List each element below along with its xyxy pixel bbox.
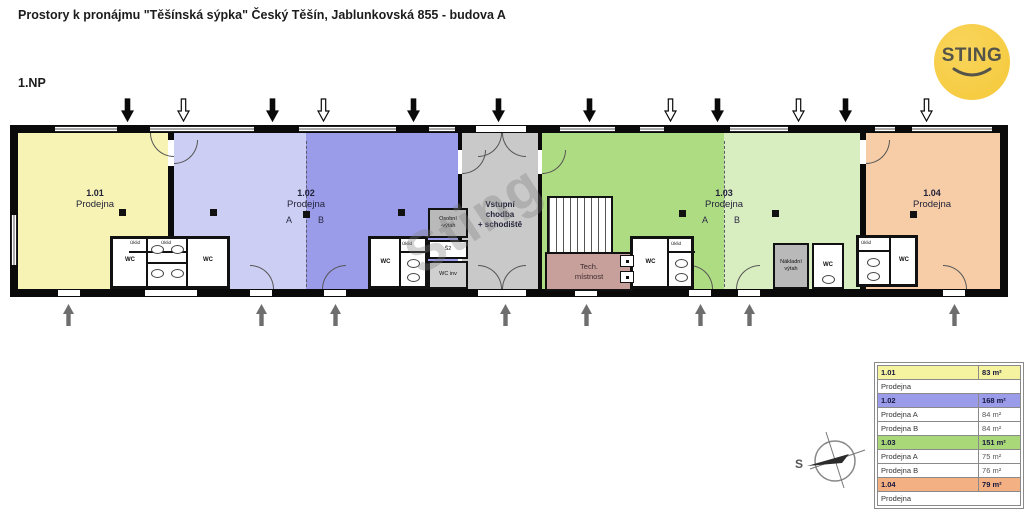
entrance-arrow-up (499, 304, 512, 331)
label-103-a: A (702, 215, 708, 225)
compass-north-arrow (807, 454, 849, 466)
entrance-arrow-down-outline (177, 98, 190, 127)
uklid-label: Úklid (130, 240, 140, 245)
entrance-arrow-down-outline (792, 98, 805, 127)
compass: S (790, 428, 866, 495)
label-103: 1.03 Prodejna (684, 188, 764, 211)
legend-row: Prodejna (878, 380, 1021, 394)
window (429, 126, 455, 132)
entrance-arrow-down-filled (492, 98, 505, 127)
label-102: 1.02 Prodejna (266, 188, 346, 211)
wc-block: WC Úklid (368, 236, 428, 289)
legend-room-area: 84 m² (979, 408, 1021, 422)
toilet-icon (867, 272, 880, 281)
toilet-icon (407, 273, 420, 282)
toilet-icon (151, 245, 164, 254)
column-marker (398, 209, 405, 216)
legend-room-name: Prodejna (878, 492, 1021, 506)
entrance-arrow-up (329, 304, 342, 331)
legend-room-name: 1.02 (878, 394, 979, 408)
column-marker (910, 211, 917, 218)
entrance-arrow-down-outline (317, 98, 330, 127)
window (875, 126, 895, 132)
window (55, 126, 117, 132)
door-opening (324, 290, 346, 296)
legend-room-name: 1.04 (878, 478, 979, 492)
window-left (11, 215, 17, 265)
entrance-arrow-down-filled (407, 98, 420, 127)
wc-label: WC (814, 262, 842, 268)
toilet-icon (171, 245, 184, 254)
uklid-label: Úklid (671, 241, 681, 246)
entrance-arrow-up (580, 304, 593, 331)
legend-room-area: 84 m² (979, 422, 1021, 436)
entrance-arrow-down-outline (920, 98, 933, 127)
legend-row: Prodejna A75 m² (878, 450, 1021, 464)
entrance-arrow-down-outline (664, 98, 677, 127)
door-opening (478, 290, 526, 296)
legend-row: 1.03151 m² (878, 436, 1021, 450)
wall-right (1000, 125, 1008, 297)
entrance-arrow-down-filled (839, 98, 852, 127)
uklid-label: Úklid (402, 241, 412, 246)
room-s2: Š2 (428, 240, 468, 259)
window (640, 126, 664, 132)
wc-label: WC (372, 259, 399, 265)
door-opening (738, 290, 760, 296)
electrical-panel-icon (620, 271, 634, 283)
legend-room-name: Prodejna A (878, 450, 979, 464)
uklid-label: Úklid (161, 240, 171, 245)
uklid-label: Úklid (861, 240, 871, 245)
page-title: Prostory k pronájmu "Těšínská sýpka" Čes… (18, 8, 506, 22)
toilet-icon (407, 259, 420, 268)
legend-room-area: 75 m² (979, 450, 1021, 464)
legend-row: 1.0479 m² (878, 478, 1021, 492)
entrance-arrow-down-filled (121, 98, 134, 127)
wc-label: WC (634, 259, 667, 265)
tech-room-label: Tech. (580, 262, 598, 271)
toilet-icon (675, 273, 688, 282)
label-101: 1.01 Prodejna (55, 188, 135, 211)
label-corridor: Vstupní chodba + schodiště (464, 200, 536, 230)
legend-row: Prodejna B76 m² (878, 464, 1021, 478)
label-102-b: B (318, 215, 324, 225)
staircase (547, 196, 613, 254)
label-104: 1.04 Prodejna (892, 188, 972, 211)
legend-room-name: 1.03 (878, 436, 979, 450)
wc-label: WC (115, 257, 145, 263)
room-wc-inv: WC inv (428, 261, 468, 289)
legend-room-area: 151 m² (979, 436, 1021, 450)
passenger-lift: Osobní -výtah (428, 208, 468, 238)
wc-label: WC (890, 257, 918, 263)
sting-logo: STING (934, 24, 1010, 100)
legend-row: 1.0183 m² (878, 366, 1021, 380)
wc-room: WC (812, 243, 844, 289)
legend-room-area: 168 m² (979, 394, 1021, 408)
wall-left (10, 125, 18, 297)
entrance-arrow-up (743, 304, 756, 331)
legend-room-name: Prodejna B (878, 422, 979, 436)
legend-row: Prodejna B84 m² (878, 422, 1021, 436)
door-opening (58, 290, 80, 296)
window (730, 126, 788, 132)
wc-block: Úklid WC (856, 235, 918, 287)
legend-room-area: 79 m² (979, 478, 1021, 492)
freight-lift: Nákladní výtah (773, 243, 809, 289)
legend-row: Prodejna A84 m² (878, 408, 1021, 422)
toilet-icon (675, 259, 688, 268)
sting-smile-icon (950, 67, 994, 79)
entrance-arrow-down-filled (583, 98, 596, 127)
column-marker (210, 209, 217, 216)
legend-room-name: Prodejna (878, 380, 1021, 394)
legend-row: Prodejna (878, 492, 1021, 506)
legend-room-name: Prodejna B (878, 464, 979, 478)
column-marker (303, 211, 310, 218)
wc-label: WC (189, 257, 227, 263)
entrance-arrow-up (694, 304, 707, 331)
label-103-b: B (734, 215, 740, 225)
legend-row: 1.02168 m² (878, 394, 1021, 408)
door-opening (943, 290, 965, 296)
window (150, 126, 254, 132)
area-legend-table: 1.0183 m²Prodejna1.02168 m²Prodejna A84 … (874, 362, 1024, 509)
entrance-arrow-down-filled (266, 98, 279, 127)
entrance-arrow-up (255, 304, 268, 331)
column-marker (772, 210, 779, 217)
legend-room-name: 1.01 (878, 366, 979, 380)
toilet-icon (171, 269, 184, 278)
door-opening (145, 290, 197, 296)
svg-text:S: S (795, 457, 803, 471)
window (299, 126, 396, 132)
sting-logo-text: STING (942, 45, 1003, 67)
door-opening (250, 290, 272, 296)
entrance-arrow-down-filled (711, 98, 724, 127)
electrical-panel-icon (620, 255, 634, 267)
entrance-arrow-up (948, 304, 961, 331)
toilet-icon (151, 269, 164, 278)
toilet-icon (822, 275, 835, 284)
legend-room-area: 76 m² (979, 464, 1021, 478)
floorplan-page: { "header": { "title": "Prostory k proná… (0, 0, 1024, 511)
label-102-a: A (286, 215, 292, 225)
toilet-icon (867, 258, 880, 267)
floor-level-label: 1.NP (18, 76, 46, 90)
legend-room-name: Prodejna A (878, 408, 979, 422)
door-opening (689, 290, 711, 296)
wc-block: WC Úklid (630, 236, 694, 289)
divider-103-ab (724, 141, 725, 287)
wc-block: WC WC Úklid Úklid (110, 236, 230, 289)
legend-room-area: 83 m² (979, 366, 1021, 380)
entrance-arrow-up (62, 304, 75, 331)
